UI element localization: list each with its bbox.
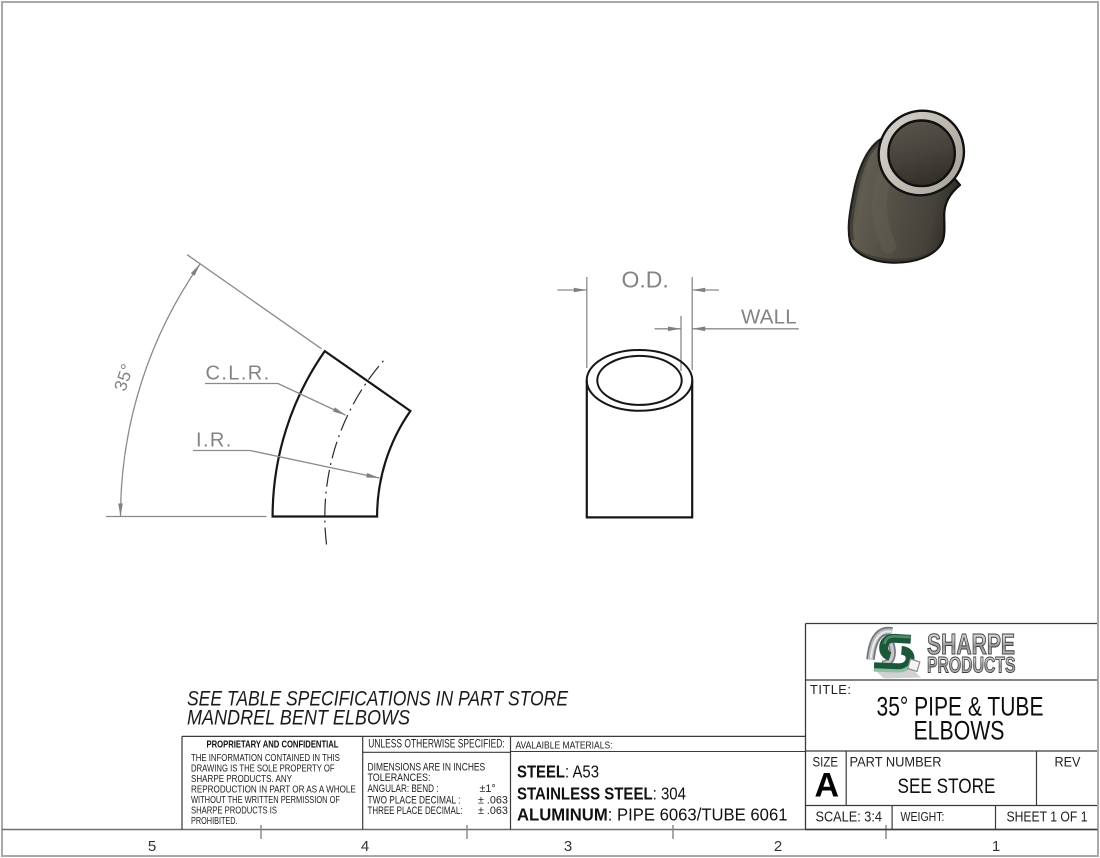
svg-text:DRAWING IS THE SOLE PROPERTY O: DRAWING IS THE SOLE PROPERTY OF (191, 763, 335, 774)
svg-text:1: 1 (992, 838, 1000, 855)
svg-text:PROHIBITED.: PROHIBITED. (191, 816, 238, 827)
svg-text:SEE STORE: SEE STORE (898, 774, 996, 798)
svg-text:2: 2 (774, 838, 782, 855)
svg-text:ELBOWS: ELBOWS (914, 716, 1005, 746)
svg-text:THE INFORMATION CONTAINED IN T: THE INFORMATION CONTAINED IN THIS (191, 753, 340, 764)
svg-text:5: 5 (148, 838, 156, 855)
svg-text:TOLERANCES:: TOLERANCES: (368, 772, 431, 784)
svg-text:I.R.: I.R. (196, 430, 233, 452)
svg-text:PROPRIETARY AND CONFIDENTIAL: PROPRIETARY AND CONFIDENTIAL (207, 740, 339, 751)
svg-text:ALUMINUM: PIPE 6063/TUBE 6061: ALUMINUM: PIPE 6063/TUBE 6061 (517, 805, 788, 825)
svg-text:3: 3 (564, 838, 572, 855)
svg-text:SHARPE PRODUCTS IS: SHARPE PRODUCTS IS (191, 806, 277, 817)
svg-text:O.D.: O.D. (622, 267, 669, 293)
svg-text:TITLE:: TITLE: (810, 682, 851, 697)
svg-text:REV: REV (1055, 754, 1082, 770)
svg-text:C.L.R.: C.L.R. (206, 363, 271, 385)
svg-text:PRODUCTS: PRODUCTS (927, 653, 1016, 678)
svg-text:4: 4 (361, 838, 369, 855)
svg-text:UNLESS OTHERWISE SPECIFIED:: UNLESS OTHERWISE SPECIFIED: (368, 739, 505, 751)
svg-text:PART NUMBER: PART NUMBER (850, 754, 942, 770)
svg-text:REPRODUCTION IN PART OR AS A W: REPRODUCTION IN PART OR AS A WHOLE (191, 784, 356, 795)
svg-text:A: A (815, 767, 840, 805)
svg-text:MANDREL BENT ELBOWS: MANDREL BENT ELBOWS (187, 706, 411, 730)
svg-text:WITHOUT THE WRITTEN PERMISSION: WITHOUT THE WRITTEN PERMISSION OF (191, 795, 340, 806)
svg-text:SHARPE PRODUCTS. ANY: SHARPE PRODUCTS. ANY (191, 774, 292, 785)
svg-text:SCALE: 3:4: SCALE: 3:4 (816, 809, 883, 826)
svg-text:AVALAIBLE MATERIALS:: AVALAIBLE MATERIALS: (516, 740, 613, 752)
svg-text:WALL: WALL (741, 306, 797, 329)
svg-text:± .063: ± .063 (478, 805, 508, 817)
svg-text:SHEET 1 OF 1: SHEET 1 OF 1 (1007, 809, 1088, 826)
svg-text:STAINLESS STEEL: 304: STAINLESS STEEL: 304 (517, 784, 686, 804)
svg-text:THREE PLACE DECIMAL:: THREE PLACE DECIMAL: (368, 805, 463, 817)
svg-text:WEIGHT:: WEIGHT: (901, 809, 945, 824)
svg-text:STEEL: A53: STEEL: A53 (517, 762, 599, 782)
